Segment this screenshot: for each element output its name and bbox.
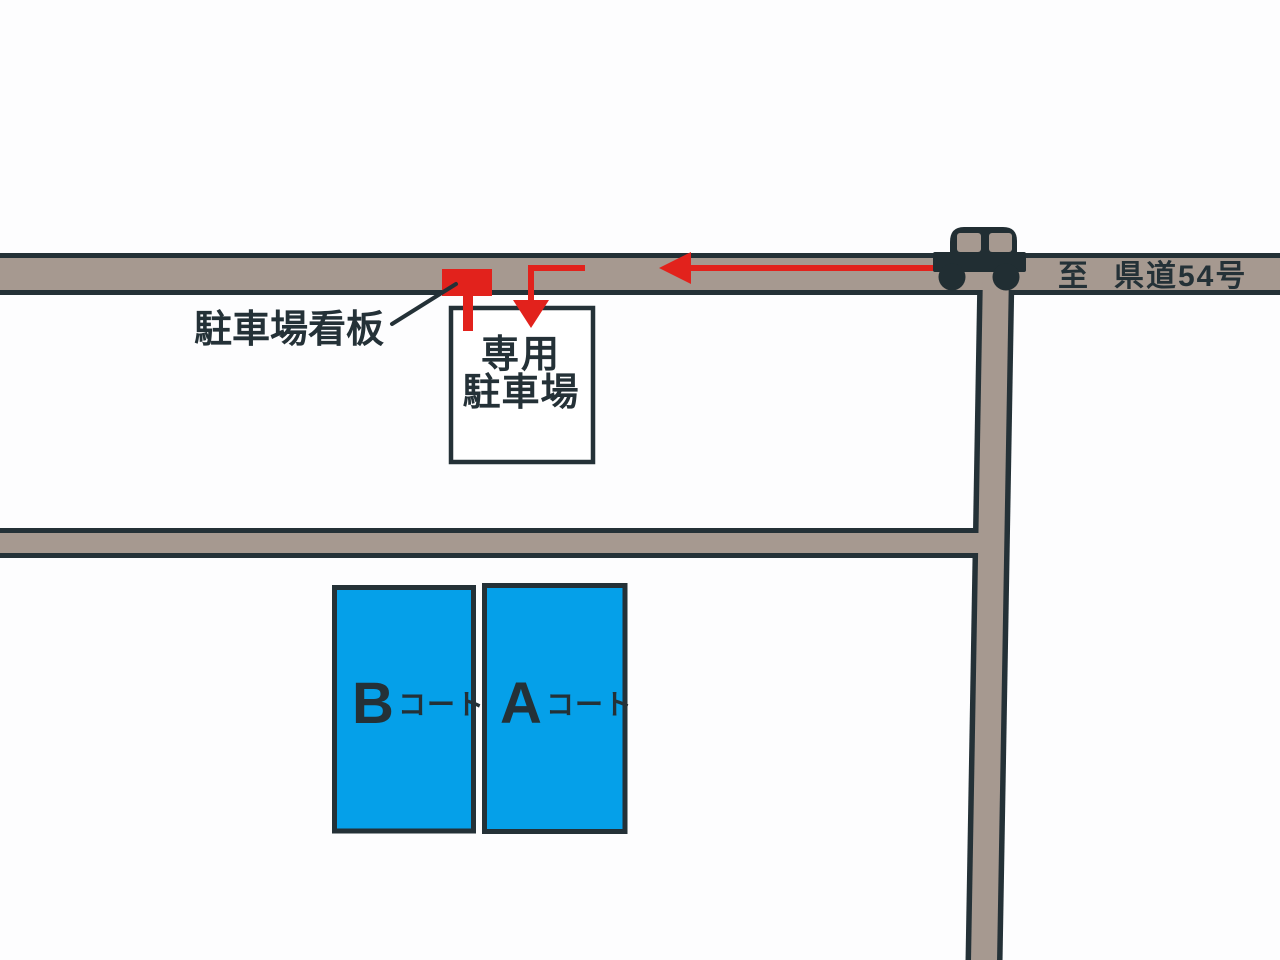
court-b-letter: B — [352, 671, 394, 736]
car-wheel — [939, 264, 966, 291]
destination-prefix-label: 至 — [1058, 260, 1088, 293]
car-window-front — [989, 233, 1012, 252]
parking-lot-label-line1: 専用 — [481, 334, 561, 376]
court-a-letter: A — [500, 671, 542, 736]
court-a: A コート — [485, 586, 634, 832]
court-b: B コート — [335, 588, 486, 832]
parking-lot-label-line2: 駐車場 — [462, 372, 579, 414]
parking-sign-label: 駐車場看板 — [194, 309, 384, 351]
parking-signboard-panel — [442, 269, 492, 296]
court-a-suffix: コート — [546, 689, 633, 720]
side-road-surface — [984, 272, 996, 960]
parking-signboard-pole — [463, 294, 473, 331]
map-background — [0, 0, 1280, 960]
destination-road-name-label: 県道54号 — [1114, 260, 1247, 293]
parking-access-map: 至 県道54号 専用 駐車場 駐車場看板 B コート A コート — [0, 0, 1280, 960]
car-window-rear — [957, 233, 981, 252]
car-wheel — [993, 264, 1020, 291]
court-b-suffix: コート — [398, 689, 485, 720]
